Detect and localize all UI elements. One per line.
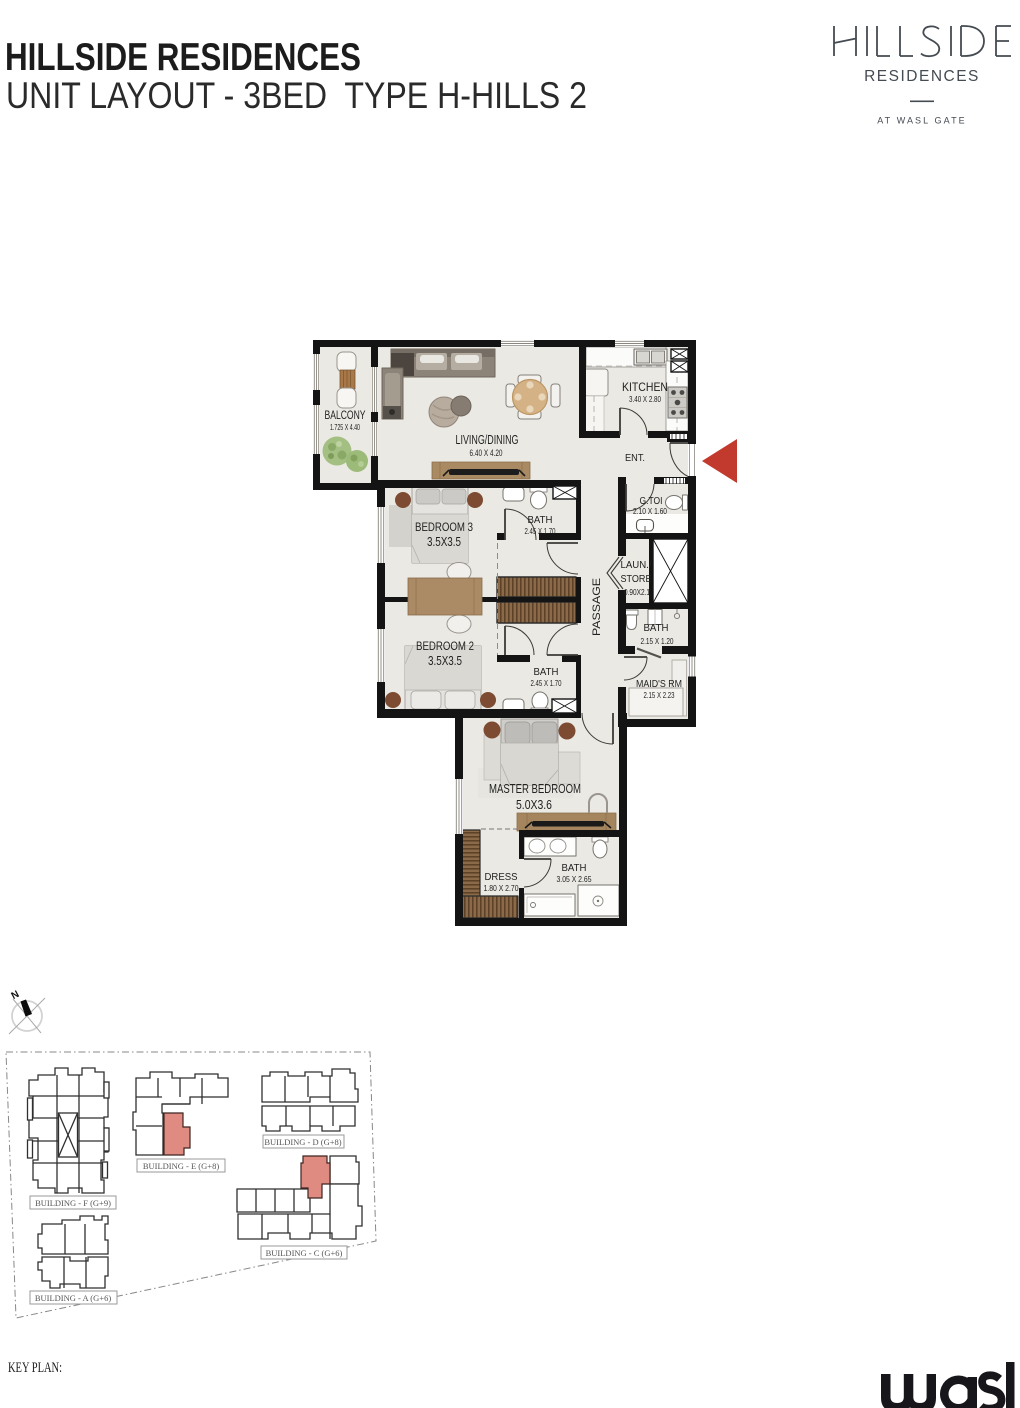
svg-text:BEDROOM 3: BEDROOM 3 (415, 522, 473, 534)
svg-text:BUILDING - E (G+8): BUILDING - E (G+8) (143, 1161, 219, 1171)
svg-text:AT WASL GATE: AT WASL GATE (877, 116, 967, 126)
svg-text:LAUN./: LAUN./ (621, 560, 652, 571)
svg-text:MAID'S RM: MAID'S RM (636, 679, 682, 690)
svg-text:2.10 X 1.60: 2.10 X 1.60 (633, 507, 667, 516)
svg-text:BATH: BATH (528, 515, 553, 526)
svg-text:MASTER BEDROOM: MASTER BEDROOM (489, 781, 581, 796)
svg-text:2.45 X 1.70: 2.45 X 1.70 (531, 679, 562, 688)
svg-text:2.15 X 2.23: 2.15 X 2.23 (644, 691, 675, 700)
svg-text:1.725 X 4.40: 1.725 X 4.40 (330, 422, 360, 432)
svg-text:UNIT LAYOUT - 3BED TYPE H-HIL: UNIT LAYOUT - 3BED TYPE H-HILLS 2 (6, 75, 587, 116)
svg-text:5.0X3.6: 5.0X3.6 (516, 797, 552, 812)
svg-text:BUILDING - A (G+6): BUILDING - A (G+6) (35, 1293, 111, 1303)
svg-text:2.45 X 1.70: 2.45 X 1.70 (525, 527, 556, 536)
svg-text:LIVING/DINING: LIVING/DINING (456, 433, 519, 447)
svg-text:3.40 X 2.80: 3.40 X 2.80 (629, 394, 661, 404)
svg-text:HILLSIDE RESIDENCES: HILLSIDE RESIDENCES (5, 36, 361, 79)
svg-text:STORE: STORE (621, 574, 652, 585)
svg-text:KITCHEN: KITCHEN (622, 380, 668, 394)
svg-text:KEY PLAN:: KEY PLAN: (8, 1360, 62, 1376)
svg-text:ENT.: ENT. (625, 452, 645, 464)
svg-text:BUILDING - F (G+9): BUILDING - F (G+9) (35, 1198, 111, 1208)
svg-text:G.TOI: G.TOI (640, 496, 663, 507)
svg-text:BUILDING - C (G+6): BUILDING - C (G+6) (266, 1248, 343, 1258)
svg-text:BEDROOM 2: BEDROOM 2 (416, 641, 474, 653)
svg-text:BALCONY: BALCONY (325, 408, 366, 422)
svg-text:PASSAGE: PASSAGE (591, 578, 603, 636)
svg-text:1.80 X 2.70: 1.80 X 2.70 (484, 884, 519, 893)
svg-text:2.15 X 1.20: 2.15 X 1.20 (641, 637, 674, 646)
svg-text:6.40 X 4.20: 6.40 X 4.20 (470, 448, 503, 458)
svg-text:3.05 X 2.65: 3.05 X 2.65 (557, 875, 592, 884)
svg-text:3.5X3.5: 3.5X3.5 (427, 535, 461, 549)
svg-text:RESIDENCES: RESIDENCES (864, 68, 980, 85)
svg-text:DRESS: DRESS (485, 872, 518, 883)
svg-text:BATH: BATH (562, 863, 587, 874)
svg-text:BATH: BATH (644, 623, 669, 634)
svg-text:0.90X2.1: 0.90X2.1 (624, 588, 650, 597)
svg-text:3.5X3.5: 3.5X3.5 (428, 654, 462, 668)
svg-text:BATH: BATH (534, 667, 559, 678)
svg-text:BUILDING - D (G+8): BUILDING - D (G+8) (264, 1137, 341, 1147)
